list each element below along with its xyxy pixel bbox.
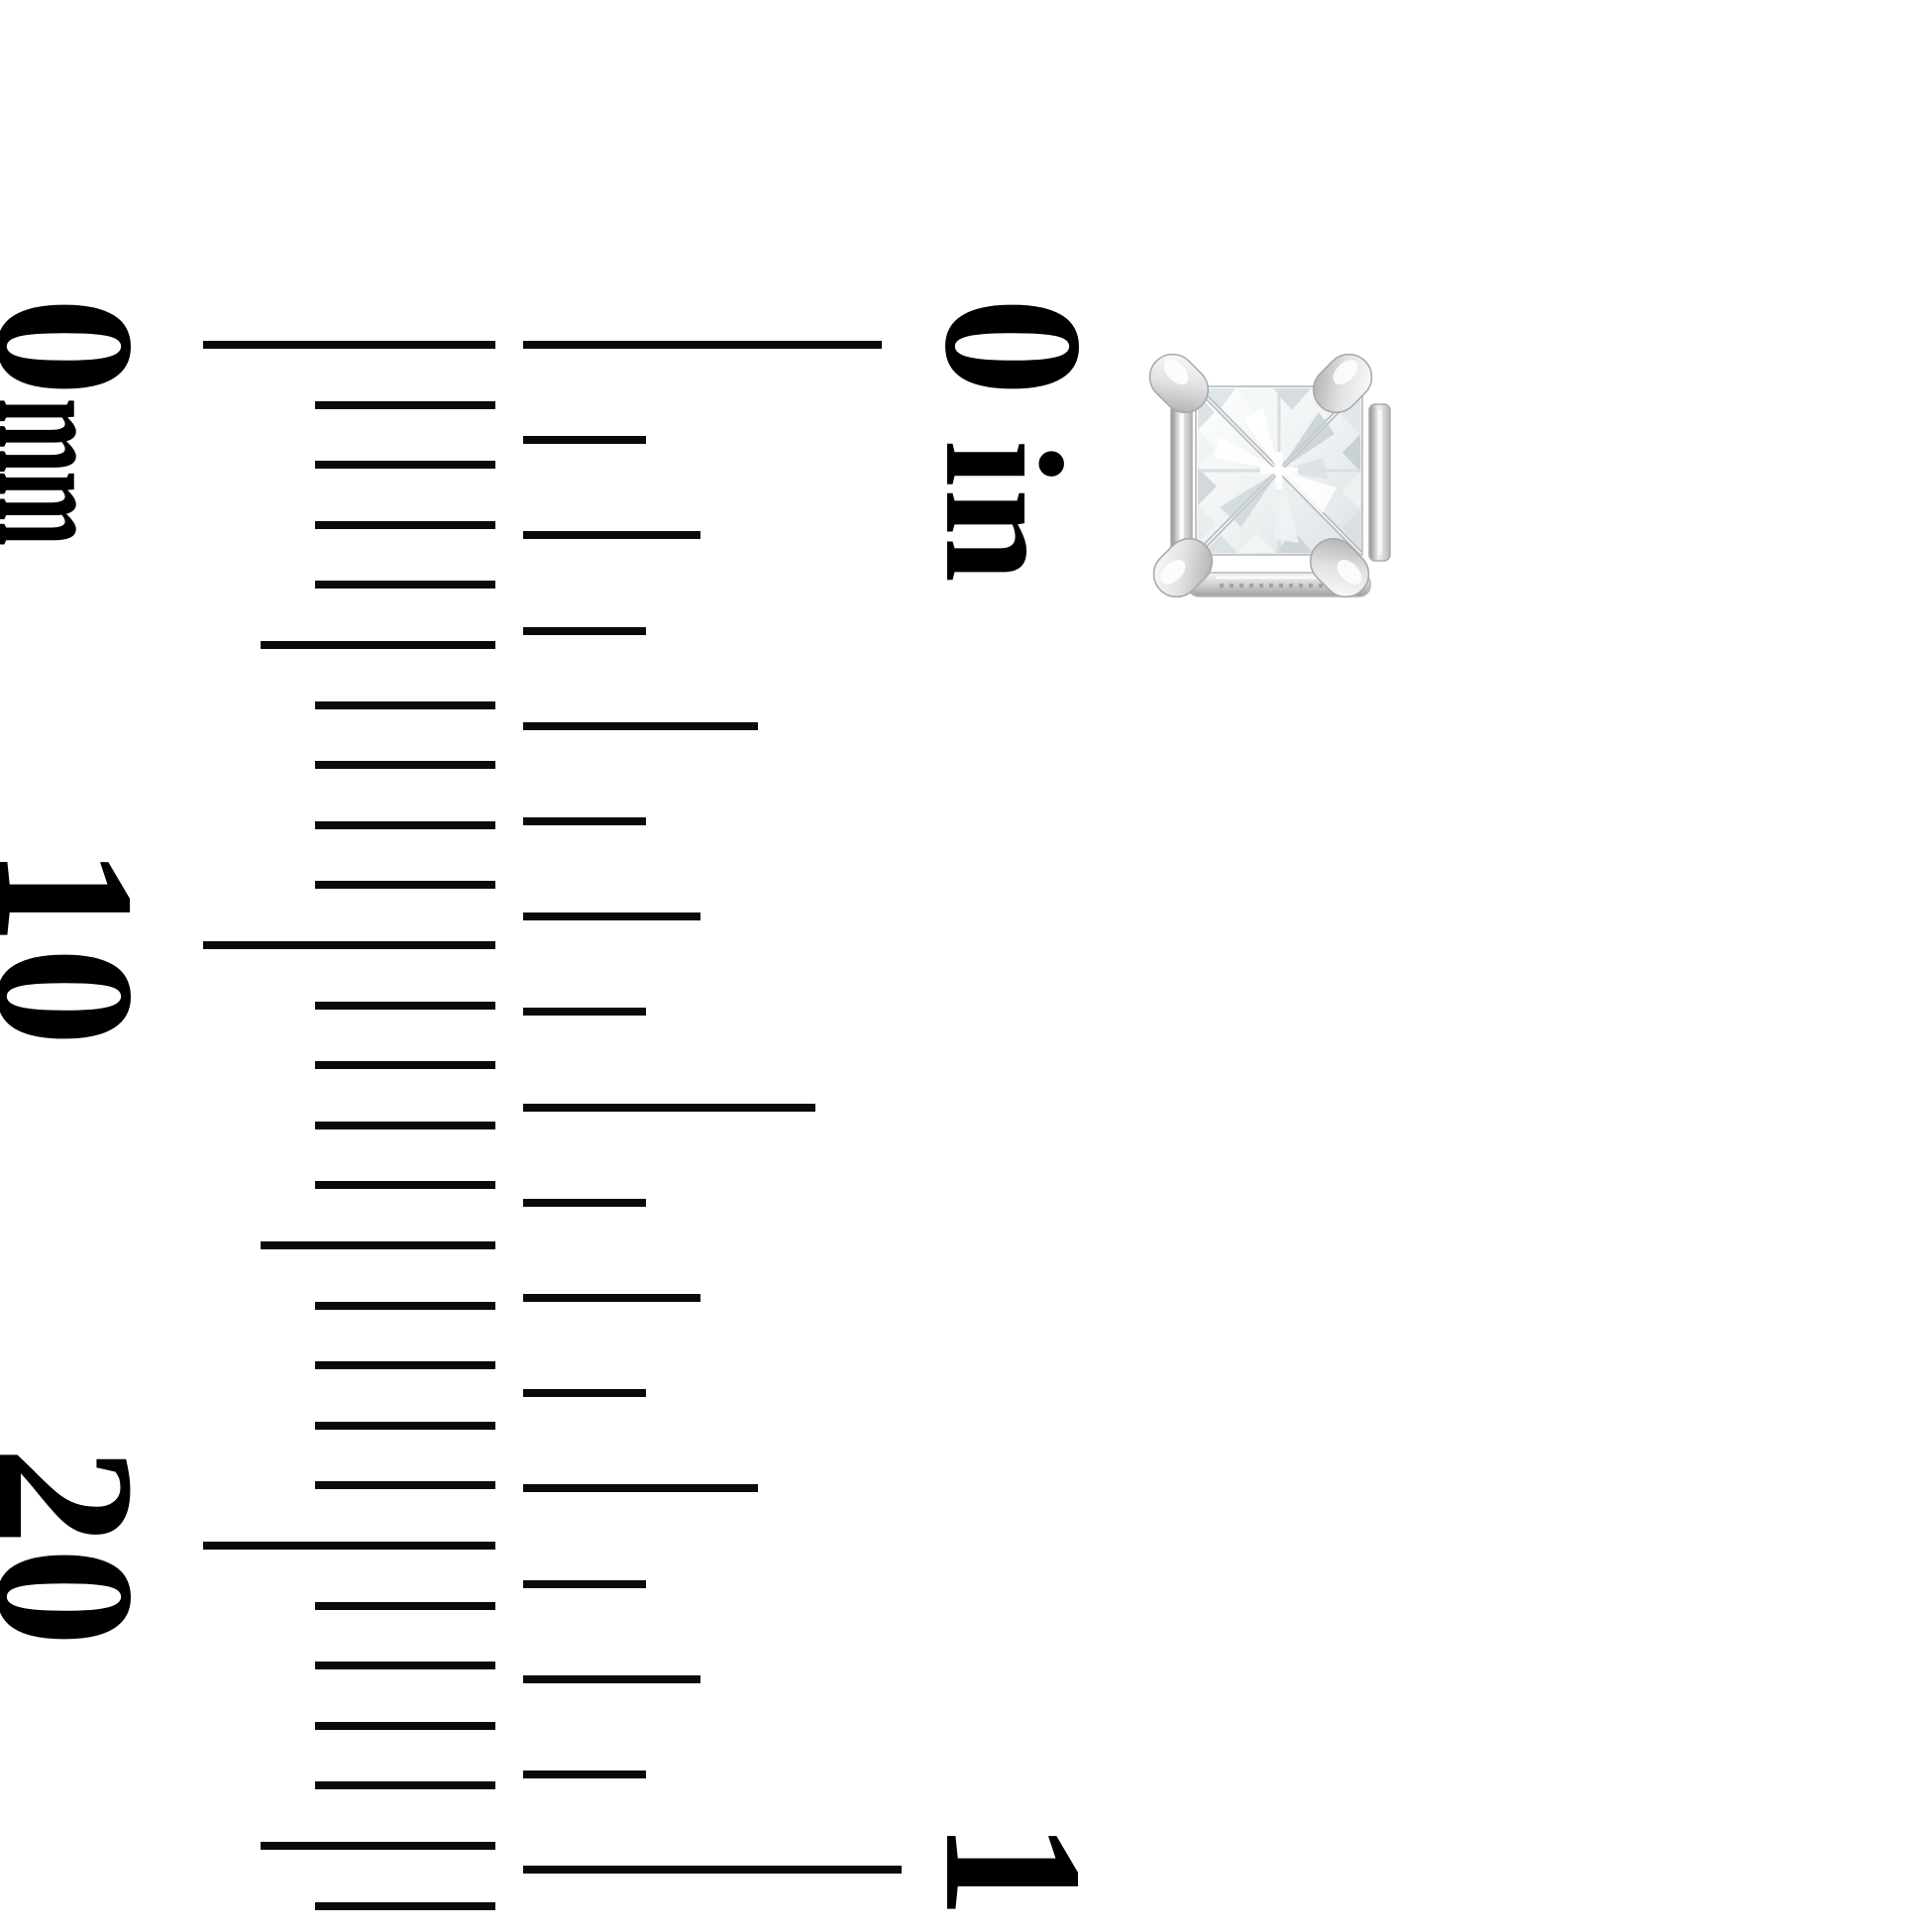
inch-tick-5 [523,817,646,825]
inch-tick-9 [523,1199,646,1207]
inch-tick-4 [523,722,758,730]
inch-label-1: 1 [913,1820,1112,1921]
mm-tick-22 [315,1662,495,1669]
inch-tick-8 [523,1104,815,1112]
inch-tick-12 [523,1484,758,1492]
inch-tick-3 [523,627,646,635]
mm-tick-14 [315,1181,495,1189]
mm-tick-5 [261,641,495,649]
inch-tick-1 [523,436,646,444]
inch-tick-0 [523,341,882,349]
mm-tick-26 [315,1902,495,1910]
mm-tick-13 [315,1122,495,1129]
mm-tick-18 [315,1422,495,1430]
mm-tick-12 [315,1061,495,1069]
inch-label-number: 1 [904,1820,1123,1921]
mm-tick-25 [261,1842,495,1850]
mm-label-unit: mm [0,398,153,544]
inch-tick-16 [523,1866,902,1874]
mm-tick-4 [315,581,495,589]
mm-tick-24 [315,1781,495,1789]
mm-tick-23 [315,1722,495,1730]
mm-tick-15 [261,1241,495,1249]
mm-tick-21 [315,1602,495,1610]
mm-tick-17 [315,1361,495,1369]
mm-tick-19 [315,1481,495,1489]
scale-image-stage: 0mm10200in1 [0,0,1932,1932]
mm-tick-0 [203,341,495,349]
earring-image [1125,349,1397,618]
inch-tick-6 [523,912,700,920]
mm-tick-8 [315,821,495,829]
mm-tick-6 [315,701,495,709]
mm-tick-10 [203,941,495,949]
inch-label-number: 0 [904,297,1123,398]
inch-tick-2 [523,531,700,539]
mm-tick-7 [315,761,495,769]
inch-tick-15 [523,1771,646,1778]
inch-label-unit: in [905,440,1103,585]
mm-tick-9 [315,881,495,889]
inch-label-0: 0in [905,297,1112,585]
mm-label-number: 0 [0,297,174,398]
mm-tick-2 [315,461,495,469]
inch-tick-13 [523,1580,646,1588]
mm-label-number: 20 [0,1447,174,1649]
mm-tick-20 [203,1542,495,1550]
inch-tick-14 [523,1675,700,1683]
inch-tick-7 [523,1008,646,1016]
mm-tick-11 [315,1002,495,1010]
mm-tick-1 [315,401,495,409]
mm-tick-16 [315,1302,495,1310]
mm-label-0: 0mm [0,297,163,663]
inch-tick-10 [523,1294,700,1302]
mm-tick-3 [315,521,495,529]
mm-label-number: 10 [0,846,174,1048]
inch-tick-11 [523,1389,646,1397]
mm-label-20: 20 [0,1447,163,1649]
mm-label-10: 10 [0,846,163,1048]
